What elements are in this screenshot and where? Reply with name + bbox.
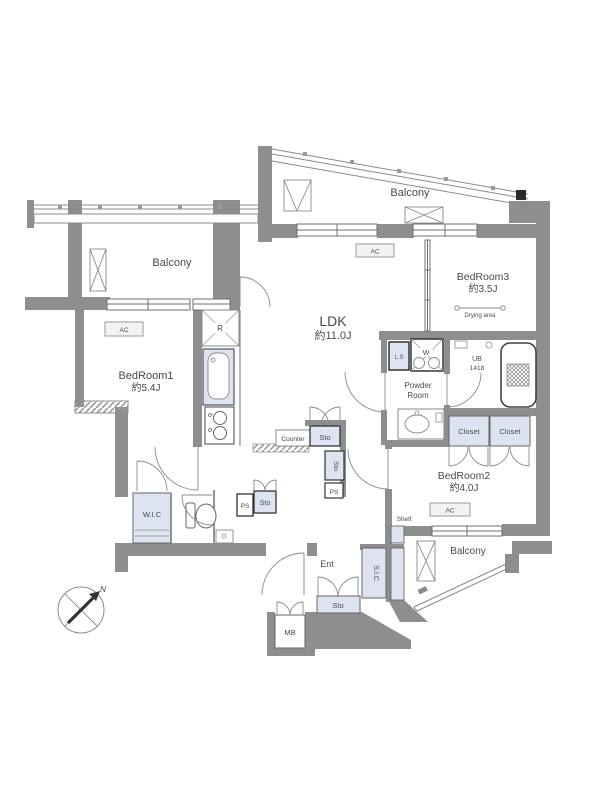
window-bedroom3-top (413, 224, 477, 236)
stove-icon (205, 407, 234, 444)
ps-label-1: PS (241, 503, 250, 510)
wic-label: W.I.C (143, 510, 162, 519)
corner-sink-icon (216, 530, 233, 543)
window-bedroom3-side (425, 240, 430, 331)
ac-label-bedroom2: AC (445, 508, 454, 515)
drying-pole-icon (455, 306, 505, 310)
ac-label-ldk: AC (370, 249, 379, 256)
shelf-label: Shelf (397, 516, 412, 523)
ps-label-2: PS (330, 489, 339, 496)
ps-box-2: PS (325, 483, 343, 498)
entrance-label: Ent (320, 559, 334, 569)
balcony-railings (34, 149, 528, 611)
floor-plan: R L.S W (0, 0, 600, 800)
ps-box-1: PS (237, 494, 253, 516)
toilet-room (171, 490, 233, 543)
window-ldk-top (297, 224, 377, 236)
window-bedroom2 (432, 526, 502, 536)
sic-label: S.I.C (372, 565, 379, 581)
bedroom3-label: BedRoom3 (457, 271, 510, 283)
balcony-top-label: Balcony (390, 187, 430, 199)
fridge-label: R (217, 324, 223, 333)
washer-icon: W (411, 339, 443, 371)
sto-label-1: Sto (260, 500, 271, 507)
north-label: N (100, 585, 106, 594)
bathtub-icon (455, 341, 536, 407)
mb-label: MB (284, 628, 295, 637)
bedroom1-label: BedRoom1 (118, 370, 173, 382)
refrigerator-space: R (202, 310, 239, 346)
drain-box-top-icon (405, 207, 443, 223)
balcony-left-label: Balcony (152, 257, 192, 269)
sto-label-4: Sto (332, 601, 343, 610)
window-kitchen (193, 299, 230, 310)
ac-label-bedroom1: AC (119, 327, 128, 334)
sto-label-3: Sto (332, 461, 339, 471)
drying-area-label: Drying area (464, 313, 496, 319)
sto-box-2: Sto (310, 426, 340, 446)
drain-box-bottom-icon (417, 541, 435, 581)
vent-box-icon (284, 180, 311, 211)
hatched-wall (75, 401, 309, 452)
north-arrow-icon (68, 598, 93, 623)
sto-box-4: Sto (317, 596, 360, 613)
kitchen-sink-icon (203, 349, 234, 405)
bath-cluster: L.S W Powder Room UB 1418 (389, 339, 536, 446)
washbasin-icon (398, 409, 444, 439)
bedroom1-size-label: 約5.4J (132, 381, 161, 394)
sic-box: S.I.C (362, 548, 386, 598)
balcony-bottom-label: Balcony (450, 546, 486, 557)
counter-box: Counter (276, 430, 310, 446)
closet-label-2: Closet (499, 427, 521, 436)
bedroom3-size-label: 約3.5J (469, 282, 498, 295)
powder-room-label: Powder (404, 381, 431, 390)
ldk-label: LDK (319, 313, 347, 329)
drain-box-left-icon (90, 249, 106, 291)
compass: N (58, 585, 106, 633)
bedroom2-label: BedRoom2 (438, 470, 491, 482)
counter-label: Counter (281, 436, 305, 443)
wic: W.I.C (133, 493, 171, 543)
closet-label-1: Closet (458, 427, 480, 436)
window-bedroom1 (107, 299, 190, 310)
floor-plan-page: R L.S W (0, 0, 600, 800)
bedroom2-size-label: 約4.0J (450, 481, 479, 494)
linen-storage: L.S (389, 342, 409, 370)
sto-box-3: Sto (325, 451, 344, 480)
powder-room-label2: Room (407, 391, 429, 400)
ls-label: L.S (394, 355, 403, 361)
washer-label: W (423, 350, 430, 357)
sto-label-2: Sto (319, 433, 330, 442)
sto-box-1: Sto (254, 491, 276, 513)
closets: Closet Closet (449, 416, 530, 446)
bath-label: UB (472, 356, 482, 363)
ldk-size-label: 約11.0J (314, 328, 351, 342)
bath-size-label: 1418 (470, 365, 485, 372)
mb-box: MB (275, 615, 305, 648)
kitchen: R (202, 310, 240, 446)
